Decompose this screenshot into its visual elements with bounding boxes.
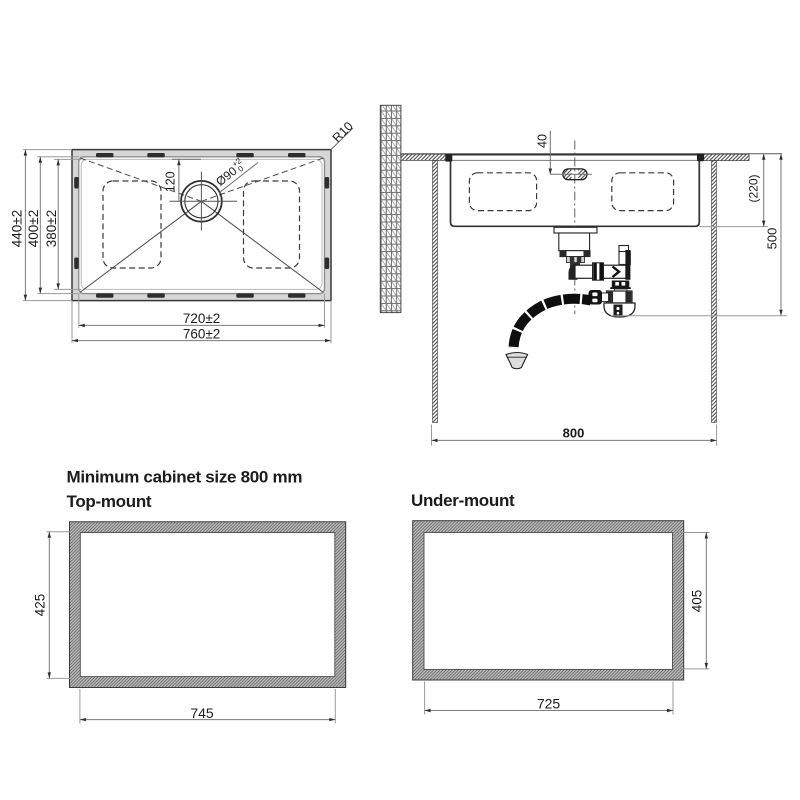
svg-text:425: 425 xyxy=(33,594,48,617)
svg-text:745: 745 xyxy=(190,705,214,721)
svg-text:440±2: 440±2 xyxy=(9,210,24,247)
svg-text:Minimum cabinet size 800 mm: Minimum cabinet size 800 mm xyxy=(67,468,303,487)
svg-text:120: 120 xyxy=(163,171,177,192)
svg-text:500: 500 xyxy=(764,228,779,250)
svg-text:800: 800 xyxy=(563,425,585,440)
svg-text:380±2: 380±2 xyxy=(44,210,59,247)
svg-text:400±2: 400±2 xyxy=(26,210,41,247)
svg-text:40: 40 xyxy=(536,134,550,148)
svg-text:(220): (220) xyxy=(747,174,761,202)
svg-text:R10: R10 xyxy=(330,119,356,145)
svg-text:Under-mount: Under-mount xyxy=(411,491,515,510)
svg-text:760±2: 760±2 xyxy=(183,326,220,341)
svg-text:720±2: 720±2 xyxy=(183,311,220,326)
svg-text:725: 725 xyxy=(537,696,561,712)
svg-text:405: 405 xyxy=(690,590,705,613)
svg-text:Top-mount: Top-mount xyxy=(67,492,152,511)
